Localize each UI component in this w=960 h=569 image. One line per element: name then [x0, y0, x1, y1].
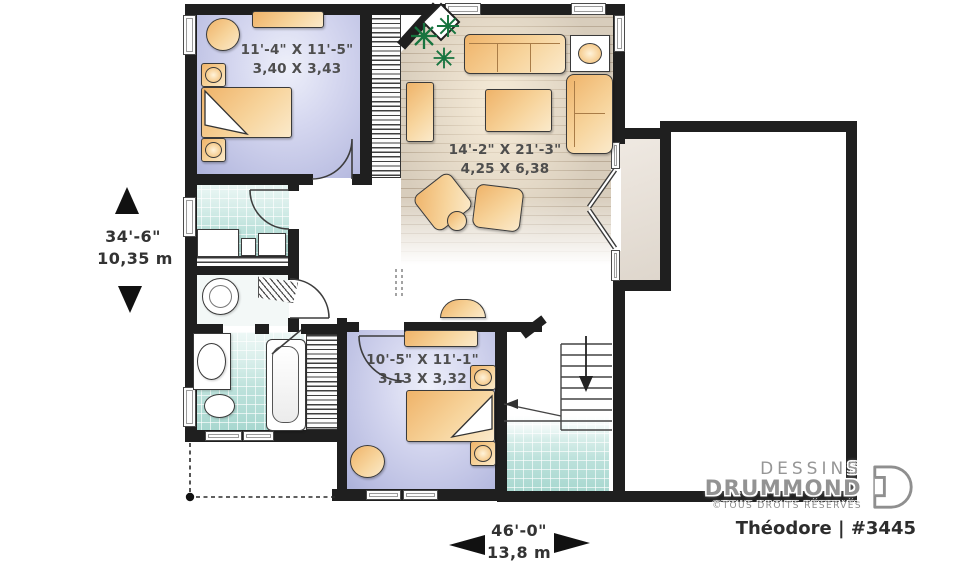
drummond-logo-mark	[870, 462, 916, 512]
opening-dashes	[396, 269, 402, 299]
sofa-cushion-line	[530, 43, 531, 72]
tv-cabinet-icon	[406, 82, 434, 142]
depth-m-label: 10,35 m	[90, 249, 180, 268]
wall-segment	[846, 121, 857, 502]
bedroom2-dim-ft: 10'-5" X 11'-1"	[345, 351, 500, 370]
window	[243, 431, 274, 441]
bed-icon	[201, 87, 292, 138]
bedroom1-label: 11'-4" X 11'-5" 3,40 X 3,43	[222, 41, 372, 79]
laundry-counter-icon	[258, 233, 286, 256]
side-table-icon	[570, 35, 610, 72]
window	[183, 15, 196, 55]
stair-landing-floor	[505, 415, 609, 493]
wall-segment	[301, 324, 340, 334]
living-label: 14'-2" X 21'-3" 4,25 X 6,38	[430, 141, 580, 179]
wall-segment	[337, 322, 359, 332]
wall-segment	[613, 280, 625, 502]
round-table-icon	[447, 211, 467, 231]
floor-plan-canvas: 11'-4" X 11'-5" 3,40 X 3,43 14'-2" X 21'…	[0, 0, 960, 569]
window	[205, 431, 242, 441]
armchair-icon	[471, 183, 524, 233]
toilet-icon	[204, 394, 235, 418]
dresser-icon	[404, 330, 478, 347]
wall-segment	[185, 4, 625, 15]
wall-segment	[288, 266, 299, 280]
lamp-icon	[578, 43, 602, 64]
lamp-icon	[205, 67, 222, 83]
plan-name-number: Théodore | #3445	[705, 519, 916, 539]
console-table-icon	[440, 299, 486, 318]
width-ft-label: 46'-0"	[487, 521, 551, 540]
width-m-label: 13,8 m	[486, 543, 552, 562]
lamp-icon	[205, 142, 222, 158]
porch-dashed-outline	[190, 443, 336, 497]
branding-block: DESSINS DRUMMOND ©TOUS DROITS RÉSERVÉS T…	[705, 461, 916, 539]
cushion-line	[574, 113, 605, 114]
dimension-arrow-left-icon	[449, 535, 485, 555]
bedroom1-dim-ft: 11'-4" X 11'-5"	[222, 41, 372, 60]
bathtub-icon	[266, 339, 306, 431]
wall-segment	[337, 318, 347, 501]
dimension-arrow-down-icon	[118, 286, 142, 313]
chair-icon	[350, 445, 385, 478]
sofa-back-line	[469, 43, 560, 44]
window	[571, 3, 606, 15]
bedroom2-label: 10'-5" X 11'-1" 3,13 X 3,32	[345, 351, 500, 389]
patio-door-opening	[611, 168, 621, 251]
sofa-cushion-line	[497, 43, 498, 72]
door-sidelight	[611, 250, 620, 281]
lamp-icon	[474, 445, 492, 462]
window	[183, 387, 196, 427]
living-dim-ft: 14'-2" X 21'-3"	[430, 141, 580, 160]
wall-segment	[497, 491, 619, 502]
depth-ft-label: 34'-6"	[93, 227, 173, 246]
sofa-icon	[464, 34, 566, 74]
wall-segment	[360, 4, 372, 185]
living-dim-m: 4,25 X 6,38	[430, 160, 580, 179]
porch-corner-dot	[186, 493, 194, 501]
dimension-arrow-up-icon	[115, 187, 139, 214]
brand-name-line2: DRUMMOND	[705, 478, 862, 499]
window	[403, 490, 438, 500]
wall-segment	[288, 174, 299, 191]
brand-rights: ©TOUS DROITS RÉSERVÉS	[705, 501, 862, 512]
wall-segment	[660, 128, 671, 291]
wall-segment	[185, 266, 299, 275]
washer-drum	[209, 285, 232, 308]
window	[445, 3, 481, 15]
stairs-arrow-icon	[505, 336, 593, 409]
stairs-above-hatch	[371, 8, 401, 178]
dimension-arrow-right-icon	[554, 533, 590, 553]
wall-segment	[255, 324, 269, 334]
nightstand-icon	[470, 441, 496, 466]
window	[614, 15, 625, 52]
bedroom1-dim-m: 3,40 X 3,43	[222, 60, 372, 79]
wall-segment	[288, 318, 299, 332]
wall-segment	[495, 322, 507, 501]
closet-chase-hatch	[306, 334, 338, 430]
nightstand-icon	[201, 138, 226, 162]
window	[366, 490, 401, 500]
wall-segment	[660, 121, 857, 132]
bed-icon	[406, 390, 495, 442]
alcove-floor	[618, 139, 662, 282]
bathtub-basin	[272, 346, 299, 423]
window	[183, 197, 196, 237]
washer-icon	[202, 278, 239, 315]
bedroom2-dim-m: 3,13 X 3,32	[345, 370, 500, 389]
cushion-line	[574, 81, 575, 147]
laundry-counter-icon	[241, 238, 256, 256]
sink-icon	[197, 343, 226, 380]
dresser-icon	[252, 11, 324, 28]
laundry-counter-icon	[197, 229, 239, 257]
coffee-table-icon	[485, 89, 552, 132]
